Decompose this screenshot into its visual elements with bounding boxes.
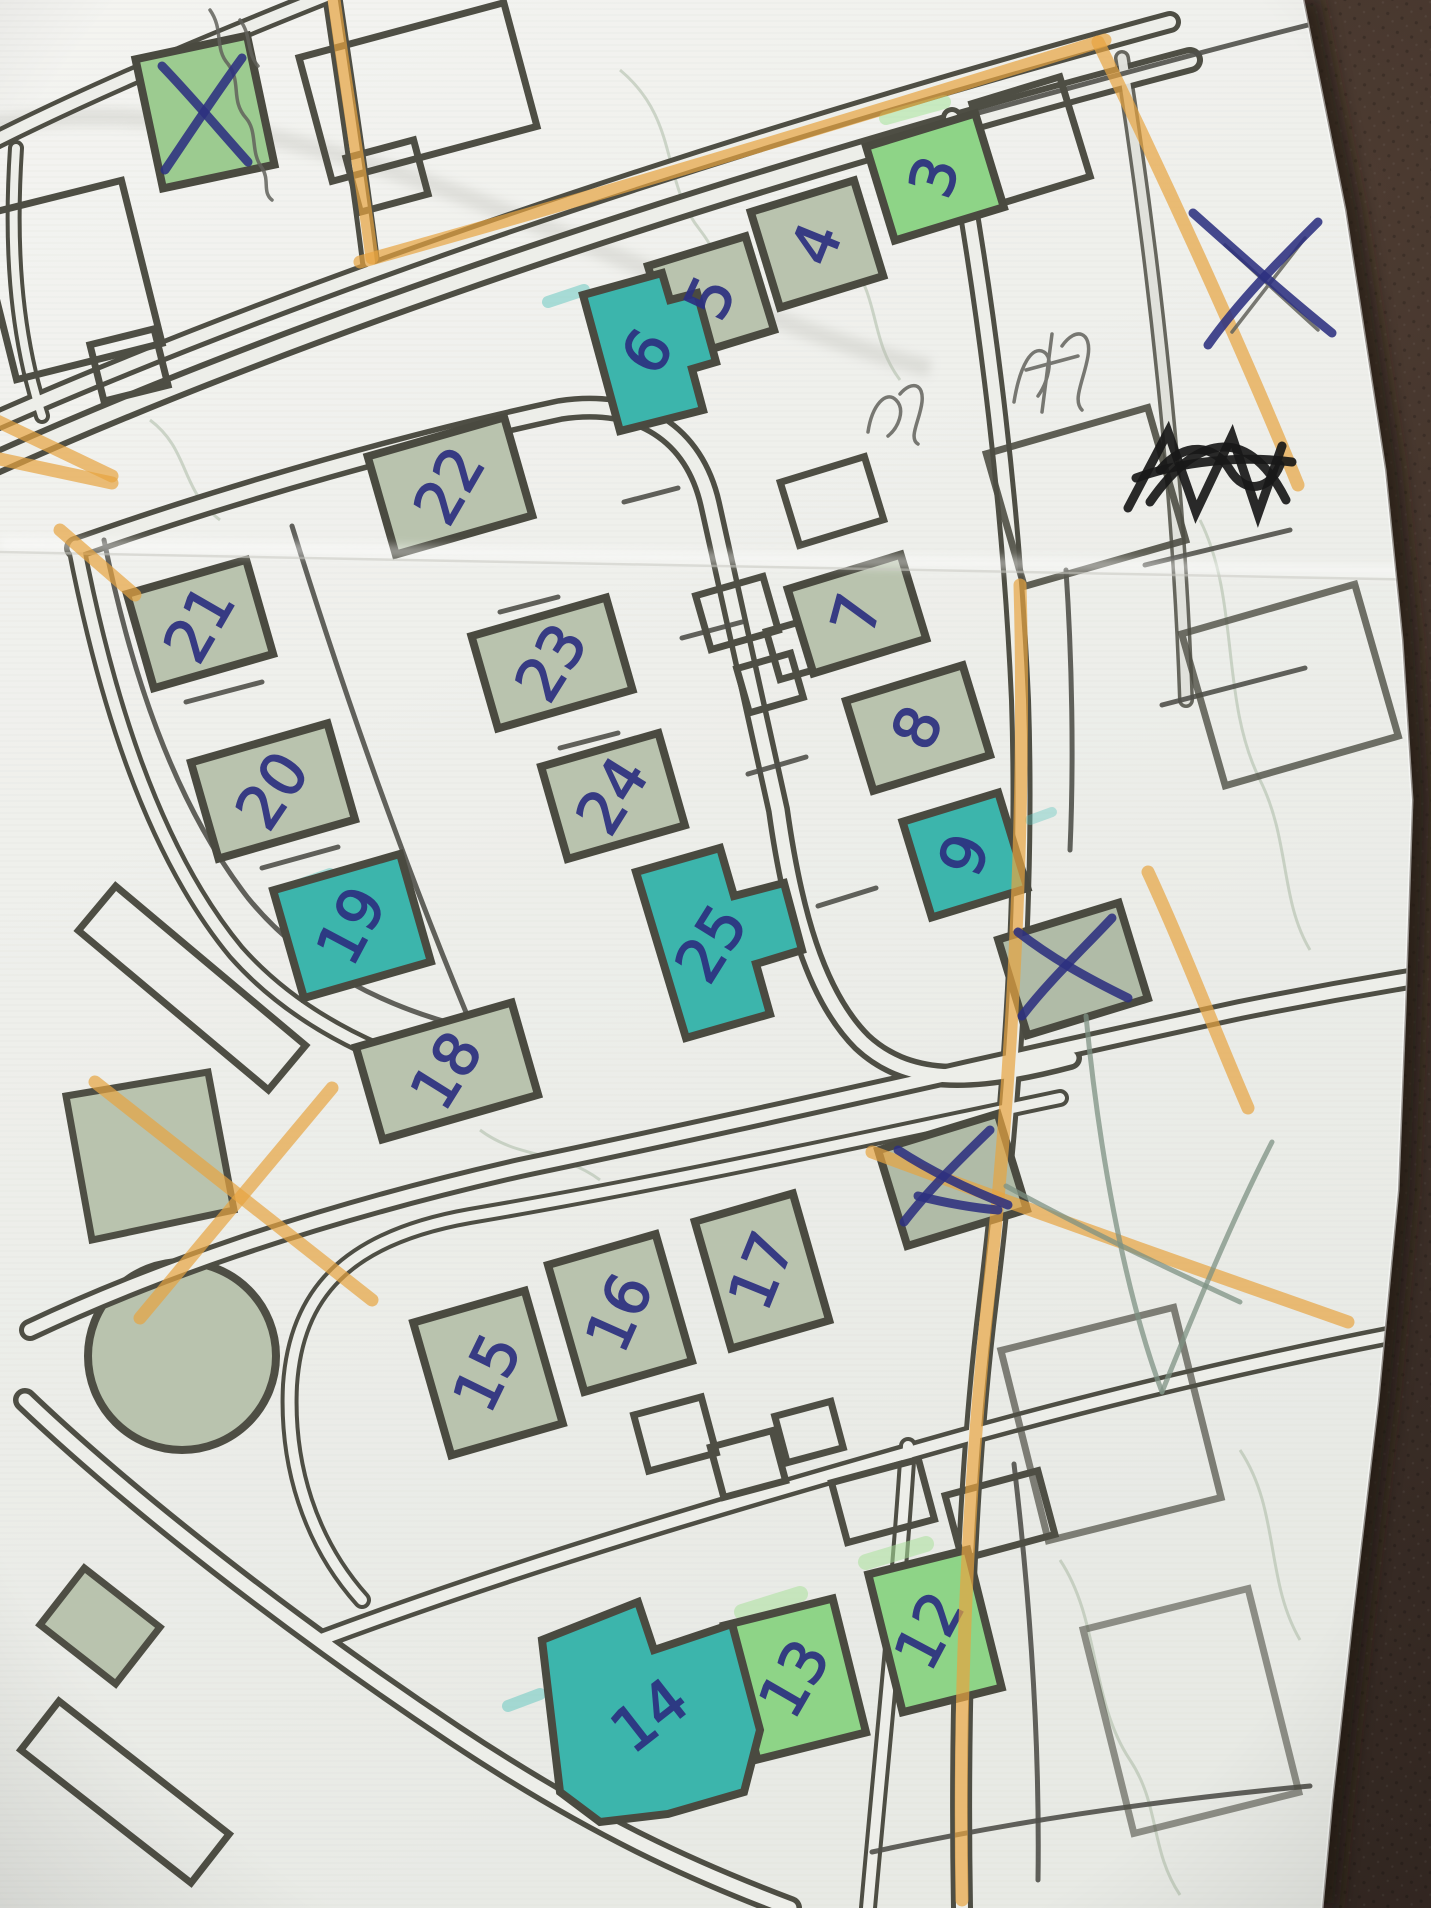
map-photo: 3 4 5 6 7 8 9 22 23 24 25 21 20 19 18 17… (0, 0, 1431, 1908)
photo-vignette (0, 0, 1431, 1908)
